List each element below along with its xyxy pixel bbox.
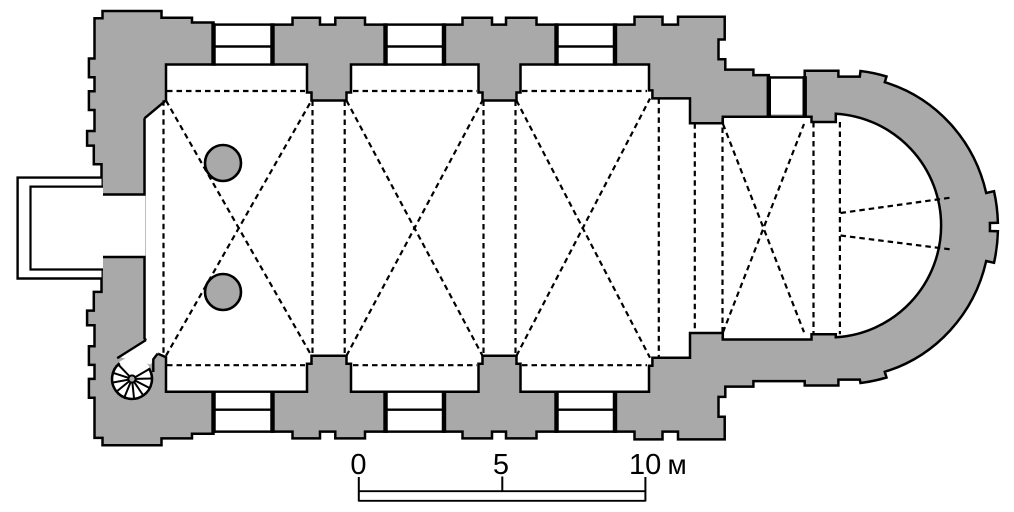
svg-text:5: 5 [493,449,509,481]
svg-text:м: м [668,449,687,480]
svg-text:10: 10 [629,449,661,481]
svg-text:0: 0 [350,449,366,481]
